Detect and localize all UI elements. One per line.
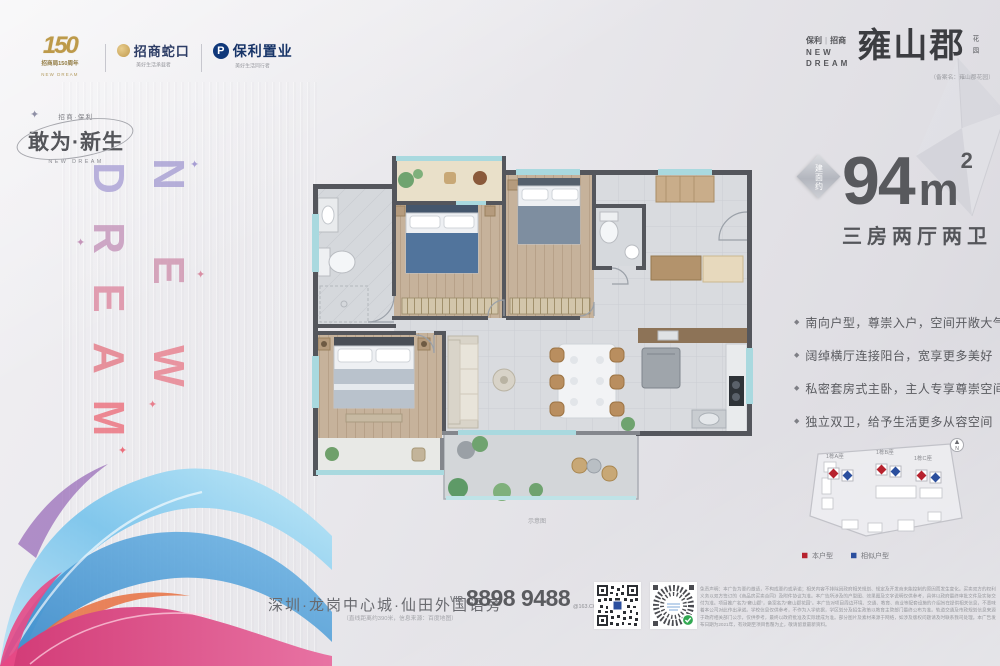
floorplan: 示意图: [306, 148, 764, 528]
developer-cmsk: 招商: [830, 35, 846, 46]
letter-w: W: [146, 340, 190, 392]
property-poster: 150 招商局150周年 NEW DREAM 招商蛇口 美好生活承载者 P 保利…: [0, 0, 1000, 666]
floorplan-caption: 示意图: [492, 512, 582, 530]
hotline: VIP 8898 9488 @163.COM: [450, 587, 609, 615]
bullet-icon: ◆: [794, 318, 799, 331]
disclaimer-text: 免责声明：本广告为要约邀请，不构成要约或承诺；相关内容不排除因政府相关规划、规定…: [700, 586, 996, 629]
cmsk-caption: 美好生活承载者: [136, 61, 171, 68]
partner-logos: 150 招商局150周年 NEW DREAM 招商蛇口 美好生活承载者 P 保利…: [26, 34, 293, 81]
tower-label: 1栋C座: [914, 454, 933, 462]
legend-item: 本户型: [802, 549, 839, 562]
anniversary-logo: 150 招商局150周年 NEW DREAM: [26, 34, 94, 81]
vertical-word-dream: D R E A M: [82, 156, 134, 456]
wechat-qr-code: [650, 582, 697, 629]
letter-m: M: [86, 392, 130, 444]
anniversary-150-mark: 150: [43, 34, 77, 58]
bullet-icon: ◆: [794, 384, 799, 397]
letter-d: D: [86, 152, 130, 204]
vertical-word-new: N E W: [142, 152, 194, 440]
cmsk-name: 招商蛇口: [134, 41, 190, 60]
tower-label: 1栋B座: [876, 448, 894, 456]
newdream-line2: DREAM: [806, 59, 850, 70]
anniversary-subtitle: NEW DREAM: [41, 72, 78, 77]
legend-red-square: [802, 553, 807, 558]
suffix-char: 花: [973, 34, 979, 43]
poly-p-icon: P: [213, 43, 229, 59]
legend-label: 本户型: [812, 550, 833, 560]
legend-label: 相似户型: [861, 550, 889, 560]
letter-n: N: [146, 148, 190, 200]
developer-poly: 保利: [806, 35, 822, 46]
floorplan-drawing: [306, 148, 764, 506]
area-value: 94: [842, 155, 914, 208]
qr-codes: [594, 582, 697, 629]
poly-caption: 美好生活同行者: [235, 62, 270, 69]
anniversary-caption: 招商局150周年: [41, 59, 78, 67]
selling-points: ◆ 南向户型，尊崇入户，空间开敞大气 ◆ 阔绰横厅连接阳台，宽享更多美好 ◆ 私…: [794, 314, 1000, 446]
selling-point-text: 南向户型，尊崇入户，空间开敞大气: [805, 314, 1000, 331]
legend-item: 相似户型: [851, 549, 897, 562]
selling-point: ◆ 阔绰横厅连接阳台，宽享更多美好: [794, 347, 1000, 364]
poly-logo: P 保利置业 美好生活同行者: [213, 41, 293, 75]
selling-point: ◆ 南向户型，尊崇入户，空间开敞大气: [794, 314, 1000, 331]
project-name-suffix: 花 园: [972, 33, 980, 56]
legend-blue-square: [851, 553, 856, 558]
sitemap-legend: 本户型 相似户型: [802, 549, 968, 562]
newdream-line1: NEW: [806, 48, 850, 59]
suffix-char: 园: [973, 46, 979, 55]
logo-divider: [105, 44, 106, 72]
area-superscript: 2: [961, 148, 973, 174]
selling-point-text: 私密套房式主卧，主人专享尊崇空间: [805, 380, 1000, 397]
project-name: 雍山郡: [857, 28, 965, 65]
letter-e: E: [146, 244, 190, 296]
qr-code: [594, 582, 641, 629]
area-badge-label: 建面约: [796, 154, 842, 200]
bullet-icon: ◆: [794, 351, 799, 364]
letter-e: E: [86, 272, 130, 324]
developer-names: 保利| 招商 NEW DREAM: [806, 35, 850, 70]
sitemap-drawing: 1栋A座 1栋B座 1栋C座 N: [802, 428, 968, 540]
area-unit: m: [919, 172, 959, 208]
area-block: 建面约 94 m 2 三房两厅两卫: [796, 154, 998, 249]
letter-a: A: [86, 332, 130, 384]
legal-disclaimer: 免责声明：本广告为要约邀请，不构成要约或承诺；相关内容不排除因政府相关规划、规定…: [700, 586, 996, 644]
north-compass: N: [955, 446, 959, 452]
tower-label: 1栋A座: [826, 452, 844, 460]
sitemap: 1栋A座 1栋B座 1栋C座 N 本户型 相似户型: [802, 428, 968, 562]
area-badge: 建面约: [796, 154, 842, 200]
project-lockup: 保利| 招商 NEW DREAM 雍山郡 花 园 （备案名：雍山郡花园）: [806, 28, 994, 82]
cmsk-logo: 招商蛇口 美好生活承载者: [117, 41, 190, 74]
floorplan-caption-text: 示意图: [528, 516, 546, 525]
vip-label: VIP: [450, 595, 463, 604]
address-note: （直线距离约390米，信息来源：百度地图）: [343, 613, 457, 622]
letter-r: R: [86, 212, 130, 264]
selling-point: ◆ 私密套房式主卧，主人专享尊崇空间: [794, 380, 1000, 397]
logo-divider: [201, 44, 202, 72]
cmsk-circle-icon: [117, 44, 130, 57]
bullet-icon: ◆: [794, 417, 799, 430]
selling-point-text: 阔绰横厅连接阳台，宽享更多美好: [805, 347, 993, 364]
layout-description: 三房两厅两卫: [842, 220, 998, 249]
poly-name: 保利置业: [233, 41, 293, 61]
filing-name: （备案名：雍山郡花园）: [930, 72, 994, 81]
hotline-number: 8898 9488: [466, 587, 570, 610]
